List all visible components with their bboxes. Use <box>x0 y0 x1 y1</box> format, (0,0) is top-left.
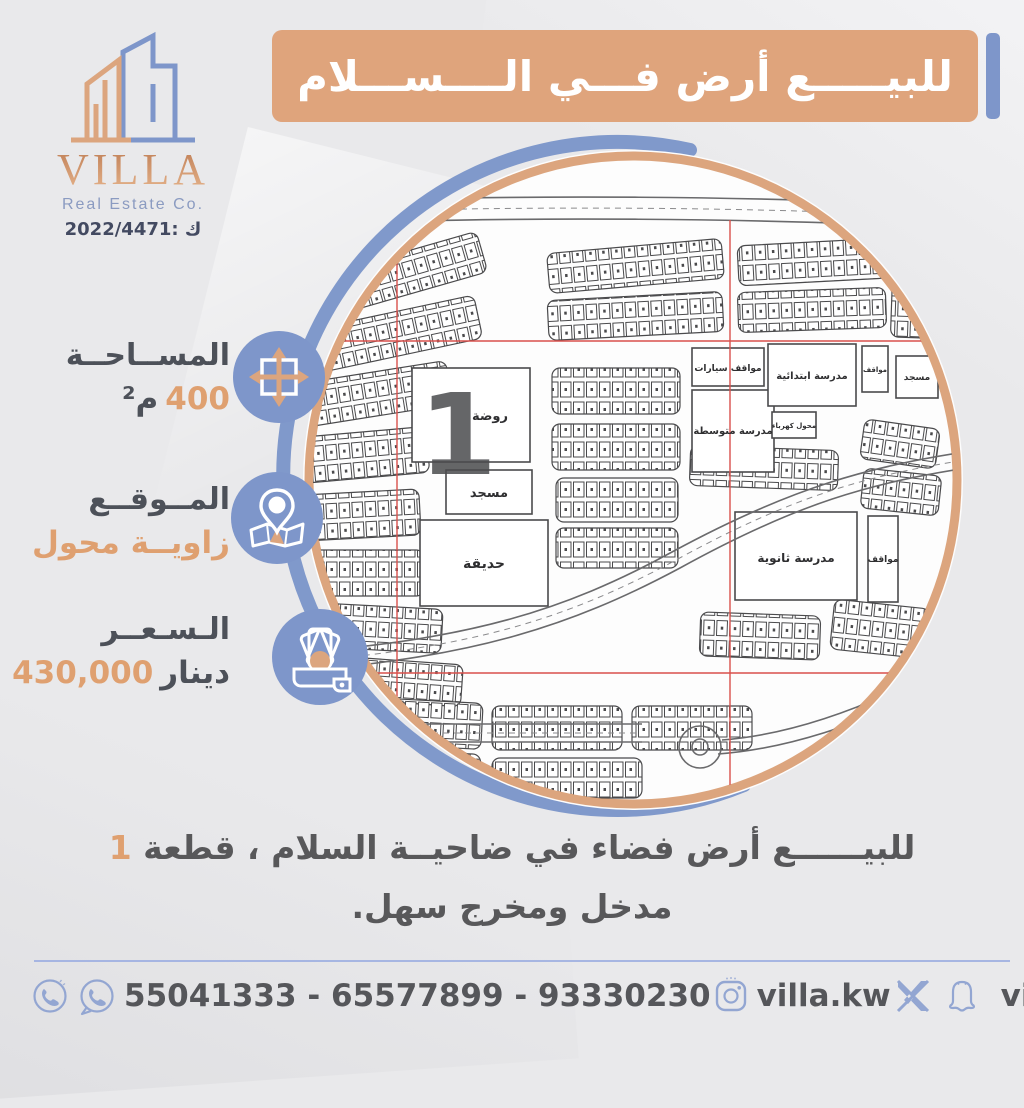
map-label-small-parking: مواقف <box>863 366 887 374</box>
location-pin-icon <box>231 472 323 564</box>
map-label-small-mosque: مسجد <box>904 373 930 383</box>
real-estate-poster: 1 روضة مسجد حديقة مواقف سيارات مدرسة متو… <box>0 0 1024 1024</box>
whatsapp-icon <box>76 973 118 1019</box>
svg-text:VILLA: VILLA <box>57 145 209 194</box>
phone-numbers: 55041333 - 65577899 - 93330230 <box>124 978 711 1014</box>
map-label-secondary-school: مدرسة ثانوية <box>757 551 834 566</box>
buildings-logo-icon <box>53 22 213 144</box>
instagram-group: villa.kw <box>711 976 891 1016</box>
area-expand-icon <box>233 331 325 423</box>
headline-title: للبيـــــع أرض فـــي الــــســـلام <box>297 52 953 101</box>
description-plot-number: 1 <box>109 828 132 867</box>
logo-subtitle: Real Estate Co. <box>28 196 238 214</box>
map-label-mosque: مسجد <box>470 486 508 501</box>
price-unit: دينار <box>160 655 230 691</box>
map-label-kindergarten: روضة <box>472 409 508 424</box>
banner-accent-bar <box>986 33 1000 119</box>
social-group: villa_kw <box>891 975 1024 1017</box>
info-row-price: الـسـعــر 430,000دينار <box>18 612 230 691</box>
instagram-icon <box>711 976 751 1016</box>
description-line1: للبيــــــع أرض فضاء في ضاحيــة السلام ،… <box>132 828 916 867</box>
company-logo: VILLA Real Estate Co. ك :2022/4471 <box>28 22 238 240</box>
map-label-parking: مواقف <box>868 555 899 565</box>
map-label-transformer: محول كهرباء <box>772 422 816 430</box>
area-value: م²400 <box>122 381 230 417</box>
area-unit: م² <box>122 381 158 417</box>
headline-banner: للبيـــــع أرض فـــي الــــســـلام <box>272 30 978 122</box>
location-value: زاويــة محول <box>32 525 230 561</box>
map-label-primary-school: مدرسة ابتدائية <box>776 371 847 382</box>
phone-icon <box>30 974 70 1018</box>
listing-description: للبيــــــع أرض فضاء في ضاحيــة السلام ،… <box>60 818 964 937</box>
footer: 55041333 - 65577899 - 93330230 villa.kw <box>30 968 1014 1024</box>
description-line2: مدخل ومخرج سهل. <box>352 887 673 926</box>
area-number: 400 <box>165 381 230 417</box>
price-value: 430,000دينار <box>12 655 230 691</box>
area-label: المســاحــة <box>66 338 230 373</box>
snapchat-icon <box>941 975 983 1017</box>
location-label: المــوقــع <box>88 482 230 517</box>
logo-wordmark: VILLA <box>28 144 238 194</box>
map-label-middle-school: مدرسة متوسطة <box>693 426 772 437</box>
footer-divider <box>34 960 1010 962</box>
money-wallet-icon <box>272 609 368 705</box>
info-row-location: المــوقــع زاويــة محول <box>18 482 230 561</box>
social-handle: villa_kw <box>1001 978 1024 1014</box>
price-number: 430,000 <box>12 655 153 691</box>
map-label-car-parking: مواقف سيارات <box>694 364 761 374</box>
map-label-park: حديقة <box>463 556 505 572</box>
logo-license: ك :2022/4471 <box>28 219 238 240</box>
price-label: الـسـعــر <box>101 612 230 647</box>
plot-number: 1 <box>419 371 497 501</box>
instagram-handle: villa.kw <box>757 978 891 1014</box>
x-icon <box>891 976 935 1016</box>
info-row-area: المســاحــة م²400 <box>18 338 230 417</box>
location-text: زاويــة محول <box>32 525 230 561</box>
phone-group: 55041333 - 65577899 - 93330230 <box>30 973 711 1019</box>
